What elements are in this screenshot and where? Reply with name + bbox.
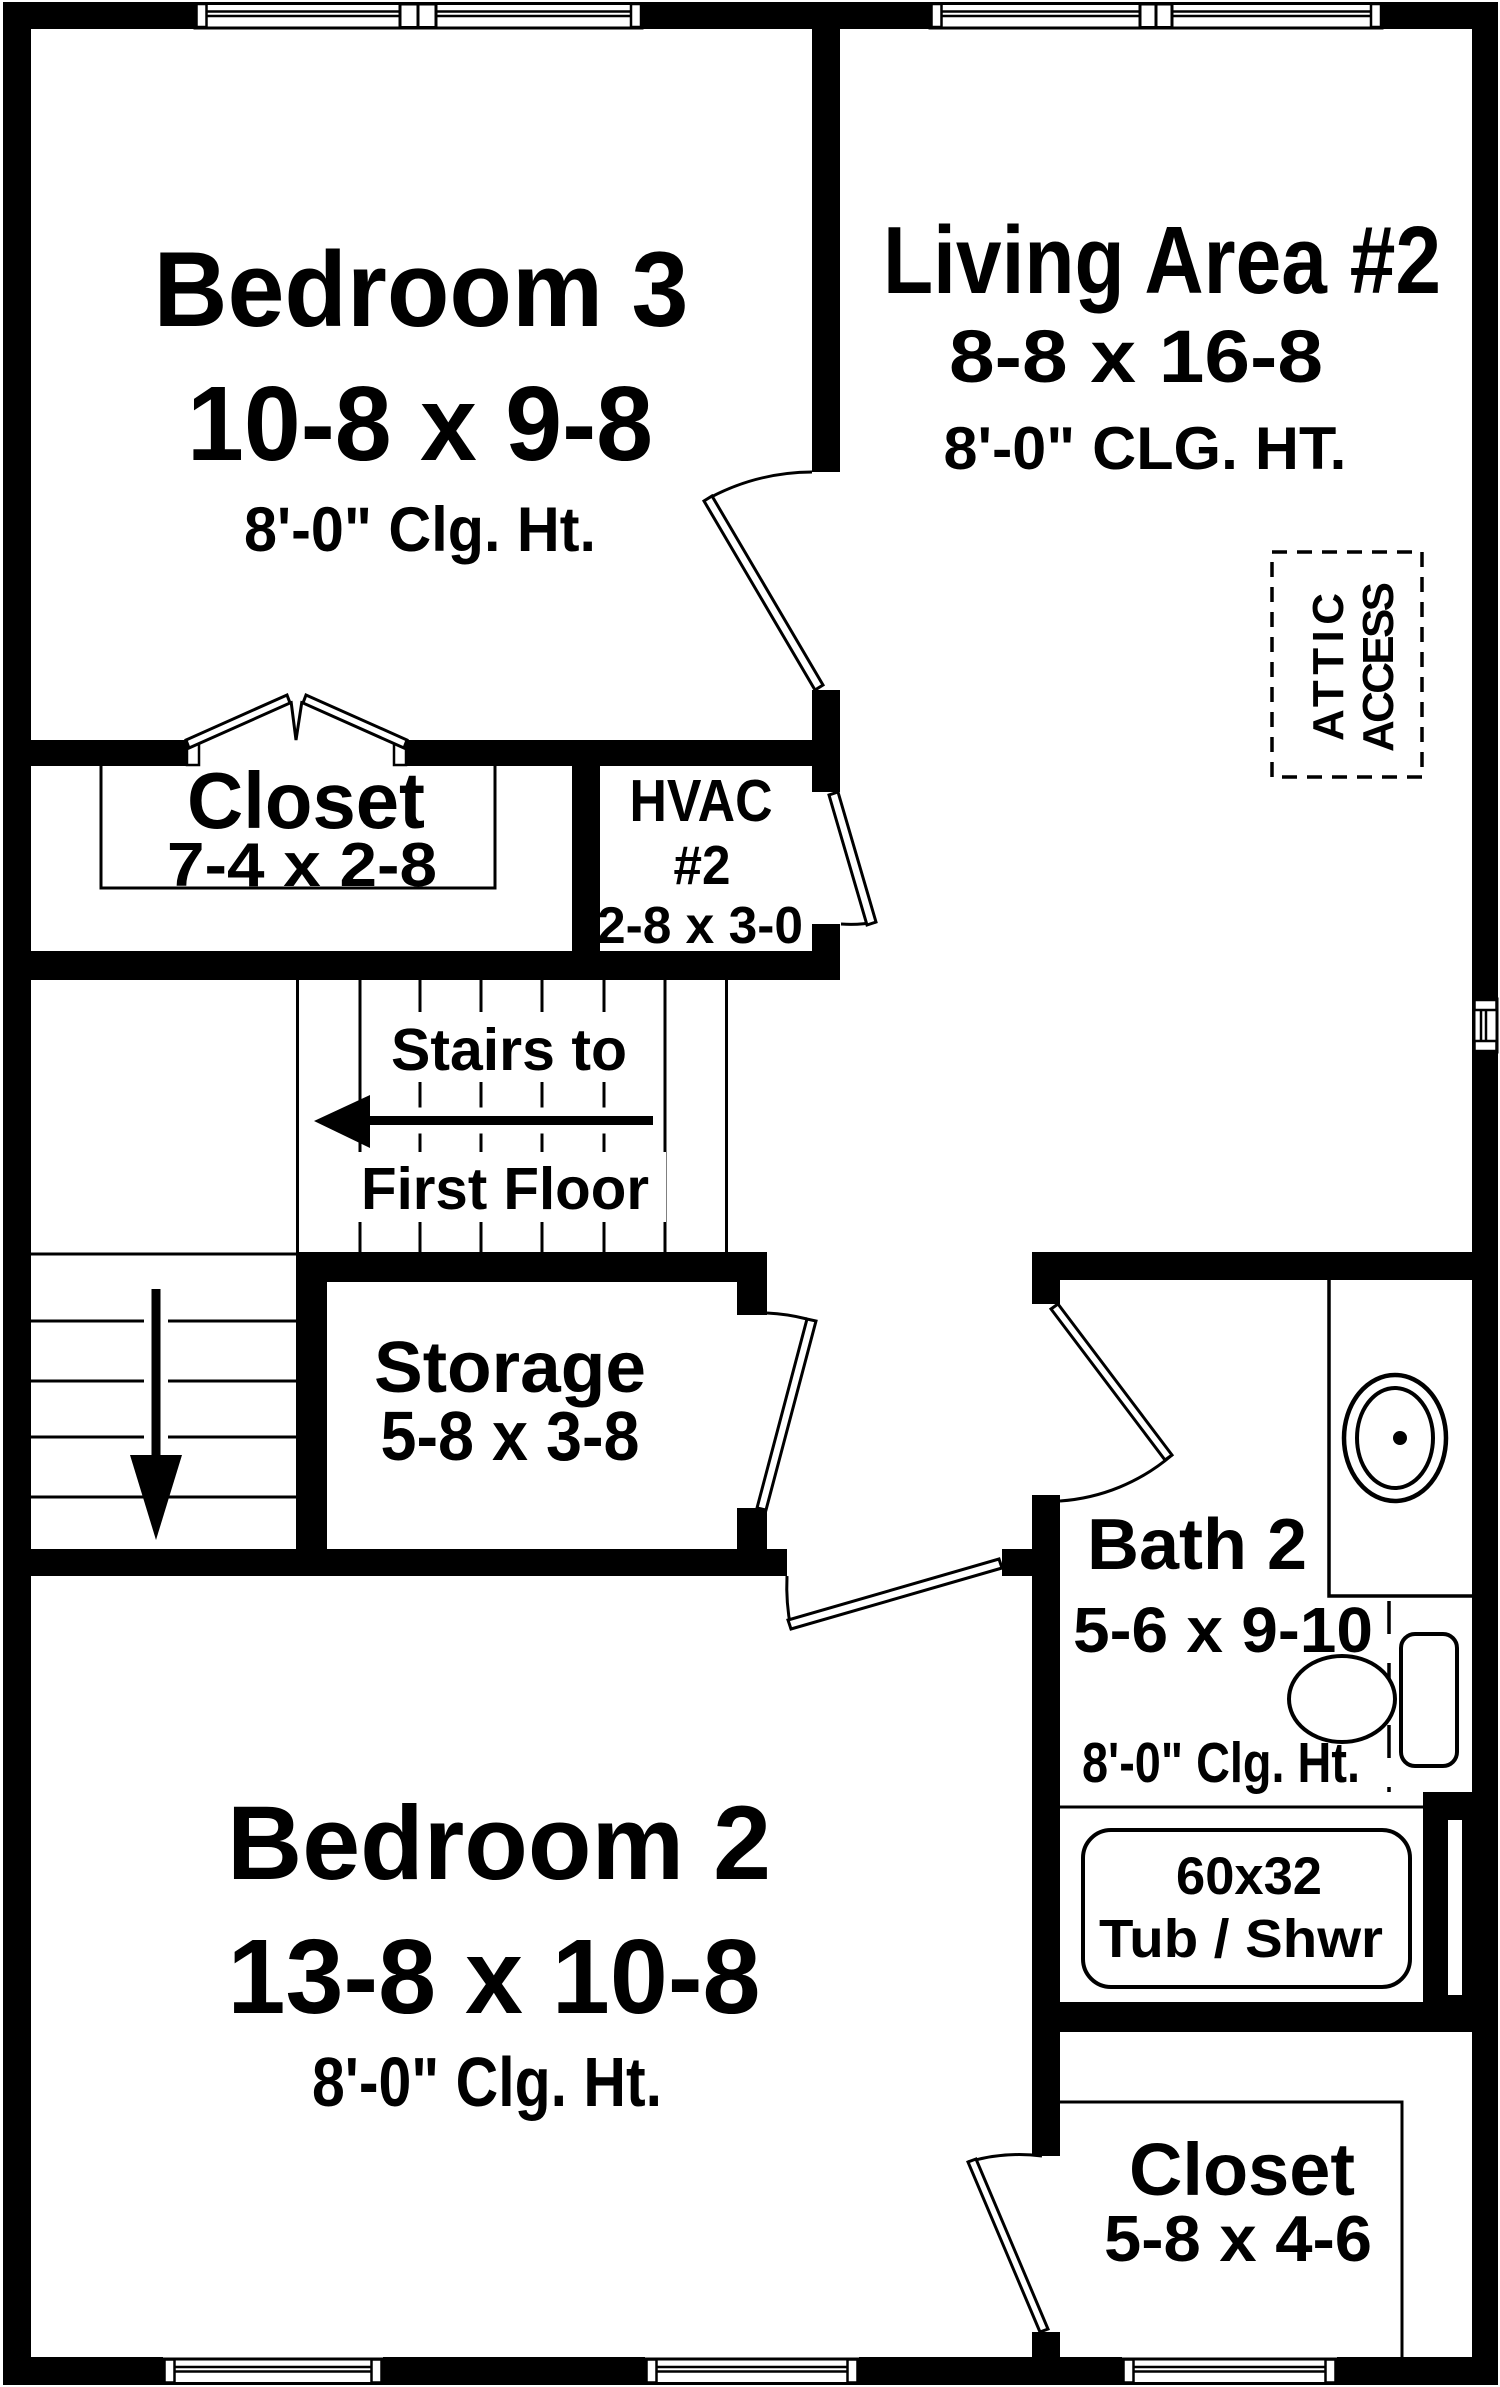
svg-text:Storage: Storage (374, 1328, 646, 1408)
svg-text:5-6 x 9-10: 5-6 x 9-10 (1073, 1594, 1373, 1666)
svg-text:Bedroom 2: Bedroom 2 (227, 1785, 771, 1902)
svg-text:10-8 x 9-8: 10-8 x 9-8 (187, 365, 653, 483)
svg-text:First Floor: First Floor (361, 1156, 649, 1222)
svg-text:Bath 2: Bath 2 (1087, 1505, 1307, 1585)
svg-text:5-8 x 3-8: 5-8 x 3-8 (381, 1397, 640, 1475)
svg-text:Tub / Shwr: Tub / Shwr (1099, 1909, 1383, 1969)
svg-text:5-8 x 4-6: 5-8 x 4-6 (1104, 2202, 1372, 2275)
svg-text:Living Area #2: Living Area #2 (883, 207, 1441, 314)
svg-text:2-8 x 3-0: 2-8 x 3-0 (597, 897, 803, 955)
svg-text:60x32: 60x32 (1176, 1847, 1322, 1906)
svg-text:HVAC: HVAC (630, 768, 773, 834)
svg-text:Stairs to: Stairs to (391, 1017, 627, 1083)
svg-text:8'-0" Clg. Ht.: 8'-0" Clg. Ht. (312, 2043, 662, 2121)
svg-text:8'-0" Clg. Ht.: 8'-0" Clg. Ht. (1082, 1731, 1360, 1795)
svg-text:7-4 x 2-8: 7-4 x 2-8 (167, 831, 437, 900)
svg-text:8'-0" Clg. Ht.: 8'-0" Clg. Ht. (244, 495, 596, 565)
svg-text:8-8 x 16-8: 8-8 x 16-8 (949, 315, 1323, 398)
svg-text:13-8 x 10-8: 13-8 x 10-8 (228, 1918, 761, 2036)
svg-text:#2: #2 (674, 834, 731, 896)
svg-text:Bedroom 3: Bedroom 3 (154, 229, 689, 349)
svg-text:8'-0" CLG. HT.: 8'-0" CLG. HT. (944, 415, 1347, 482)
svg-text:ACCESS: ACCESS (1354, 582, 1403, 752)
svg-text:Closet: Closet (1129, 2128, 1355, 2211)
svg-text:ATTIC: ATTIC (1304, 593, 1353, 741)
